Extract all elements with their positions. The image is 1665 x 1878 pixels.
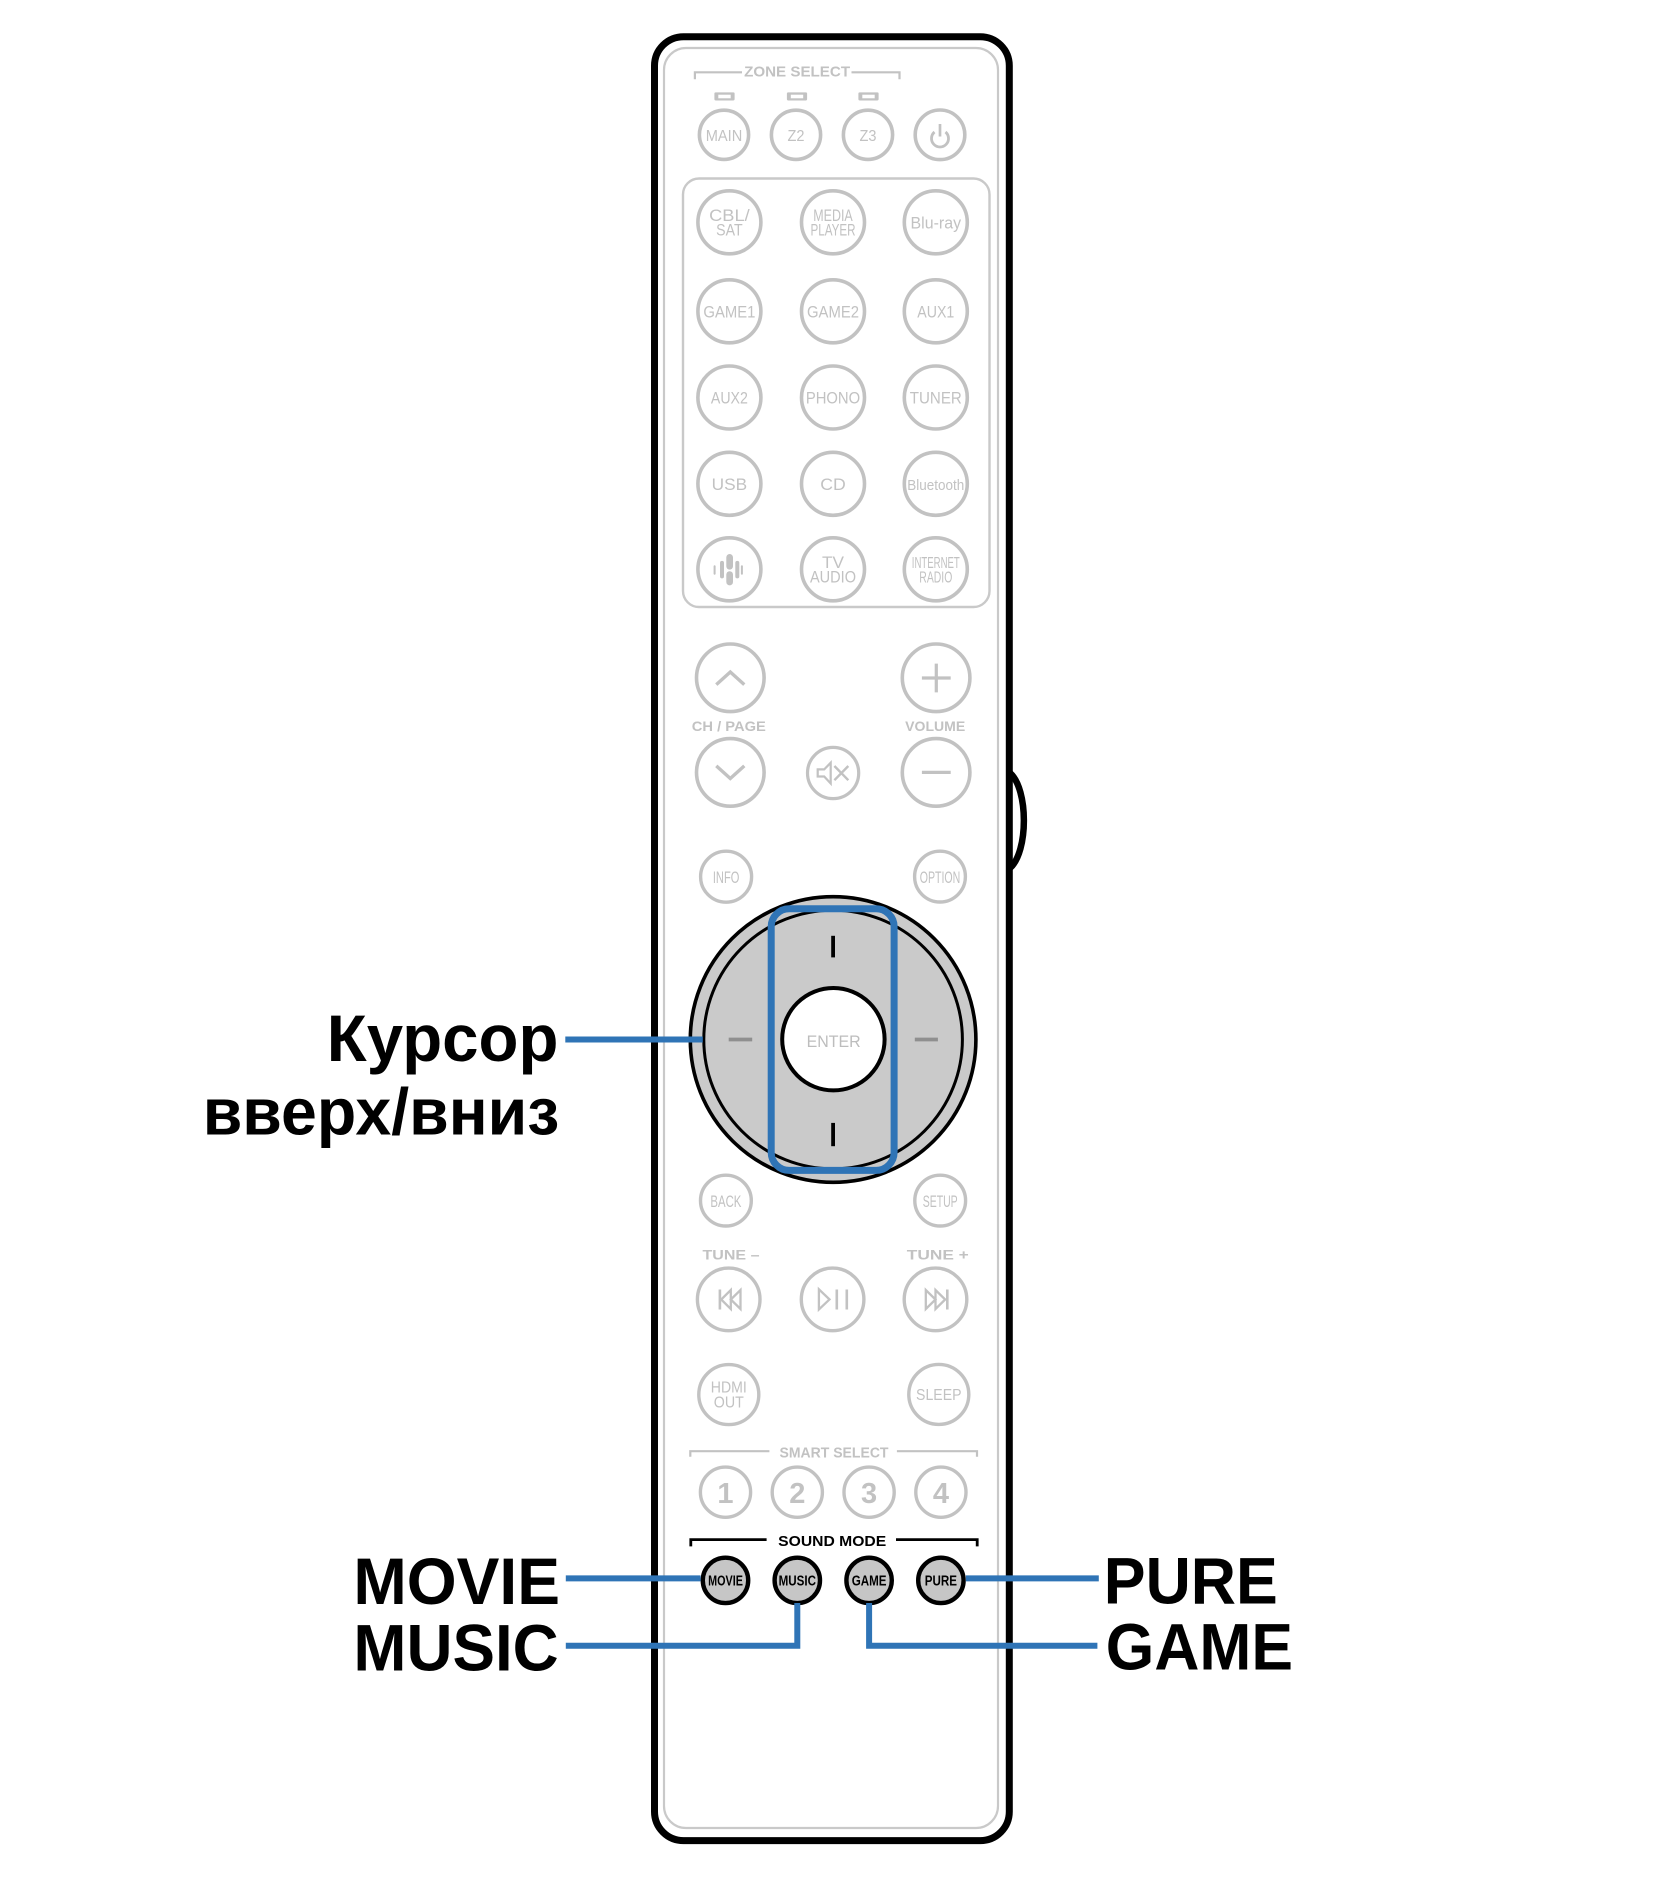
svg-text:MOVIE: MOVIE [708,1574,743,1590]
svg-text:BACK: BACK [710,1192,741,1211]
svg-text:USB: USB [712,475,748,494]
svg-text:MUSIC: MUSIC [779,1574,817,1590]
svg-text:MOVIE: MOVIE [353,1544,560,1618]
svg-text:GAME: GAME [1106,1610,1293,1684]
svg-text:PURE: PURE [925,1574,957,1590]
svg-text:TUNER: TUNER [910,389,962,408]
svg-text:4: 4 [933,1478,949,1510]
svg-text:Blu-ray: Blu-ray [911,214,962,233]
svg-text:Курсор: Курсор [327,1001,559,1075]
svg-text:Z3: Z3 [860,128,877,145]
svg-text:GAME2: GAME2 [807,303,859,322]
svg-text:PHONO: PHONO [806,389,860,408]
svg-text:GAME: GAME [852,1574,887,1590]
svg-text:ENTER: ENTER [807,1033,861,1051]
svg-text:2: 2 [789,1478,805,1510]
svg-text:VOLUME: VOLUME [905,719,965,734]
svg-text:GAME1: GAME1 [703,303,755,322]
svg-text:вверх/вниз: вверх/вниз [203,1075,560,1149]
svg-text:SETUP: SETUP [923,1192,958,1211]
svg-text:RADIO: RADIO [919,570,952,587]
svg-text:INFO: INFO [713,868,740,887]
svg-text:SOUND MODE: SOUND MODE [778,1533,886,1550]
svg-text:AUX1: AUX1 [917,303,954,322]
svg-text:MAIN: MAIN [706,128,743,145]
svg-text:SLEEP: SLEEP [916,1387,962,1404]
svg-text:MUSIC: MUSIC [353,1610,558,1684]
svg-text:1: 1 [717,1478,733,1510]
svg-text:PLAYER: PLAYER [811,221,856,240]
svg-text:AUX2: AUX2 [711,389,748,408]
svg-text:OUT: OUT [714,1395,744,1412]
svg-text:ZONE SELECT: ZONE SELECT [744,64,850,81]
svg-text:SAT: SAT [716,221,743,240]
svg-text:Z2: Z2 [788,128,805,145]
svg-text:CH / PAGE: CH / PAGE [692,719,766,734]
svg-text:CD: CD [820,475,846,494]
svg-text:OPTION: OPTION [920,868,961,887]
svg-text:TUNE –: TUNE – [703,1247,760,1263]
svg-text:AUDIO: AUDIO [810,568,856,587]
svg-text:SMART SELECT: SMART SELECT [780,1446,889,1462]
svg-text:3: 3 [861,1478,877,1510]
svg-text:TUNE +: TUNE + [907,1247,969,1263]
svg-text:PURE: PURE [1104,1544,1278,1618]
svg-text:Bluetooth: Bluetooth [907,478,964,494]
